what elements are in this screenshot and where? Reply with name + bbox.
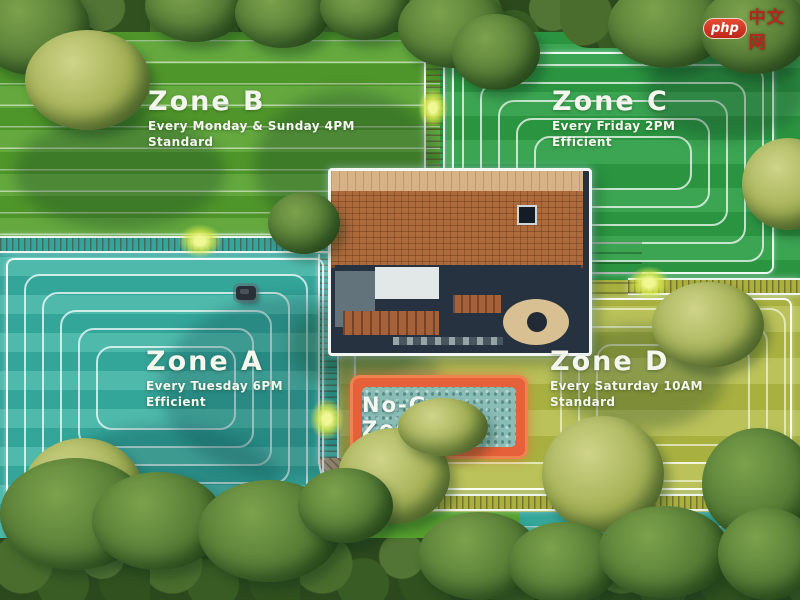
zone-c-label: Zone C Every Friday 2PM Efficient xyxy=(552,88,675,150)
terracotta-block xyxy=(453,295,501,313)
zone-a-label: Zone A Every Tuesday 6PM Efficient xyxy=(146,348,283,410)
chimney xyxy=(517,205,537,225)
house-roof xyxy=(331,171,583,268)
zone-d-title: Zone D xyxy=(550,348,703,375)
zone-c-schedule: Every Friday 2PM xyxy=(552,119,675,135)
tree xyxy=(25,30,150,130)
zone-a-mode: Efficient xyxy=(146,395,283,411)
robot-mower[interactable] xyxy=(236,286,256,300)
zone-b-mode: Standard xyxy=(148,135,355,151)
sand-patio xyxy=(503,299,569,345)
zone-a-title: Zone A xyxy=(146,348,283,375)
patio xyxy=(335,265,581,347)
php-logo: php xyxy=(703,18,747,39)
zone-d-label: Zone D Every Saturday 10AM Standard xyxy=(550,348,703,410)
zone-b-label: Zone B Every Monday & Sunday 4PM Standar… xyxy=(148,88,355,150)
passage-marker xyxy=(178,224,222,258)
lawn-map-canvas: No-Go Zone Zone B Every Monday & Sunday … xyxy=(0,0,800,600)
patio-steps xyxy=(393,337,503,345)
white-room xyxy=(375,267,439,299)
watermark-cn-text: 中文网 xyxy=(749,3,800,53)
zone-b-schedule: Every Monday & Sunday 4PM xyxy=(148,119,355,135)
bush xyxy=(398,398,488,456)
tree xyxy=(268,192,340,254)
site-watermark: php 中文网 xyxy=(703,3,800,53)
pergola xyxy=(343,311,439,335)
passage-marker xyxy=(310,398,344,440)
tree xyxy=(598,506,730,598)
zone-c-title: Zone C xyxy=(552,88,675,115)
tree xyxy=(452,14,540,90)
zone-d-mode: Standard xyxy=(550,395,703,411)
tree xyxy=(298,468,393,543)
house xyxy=(328,168,592,356)
zone-a-schedule: Every Tuesday 6PM xyxy=(146,379,283,395)
zone-b-title: Zone B xyxy=(148,88,355,115)
passage-marker xyxy=(628,266,670,300)
zone-d-schedule: Every Saturday 10AM xyxy=(550,379,703,395)
zone-c-mode: Efficient xyxy=(552,135,675,151)
passage-marker xyxy=(418,88,448,128)
patio-table xyxy=(527,312,547,332)
roof-ridge xyxy=(331,171,583,191)
